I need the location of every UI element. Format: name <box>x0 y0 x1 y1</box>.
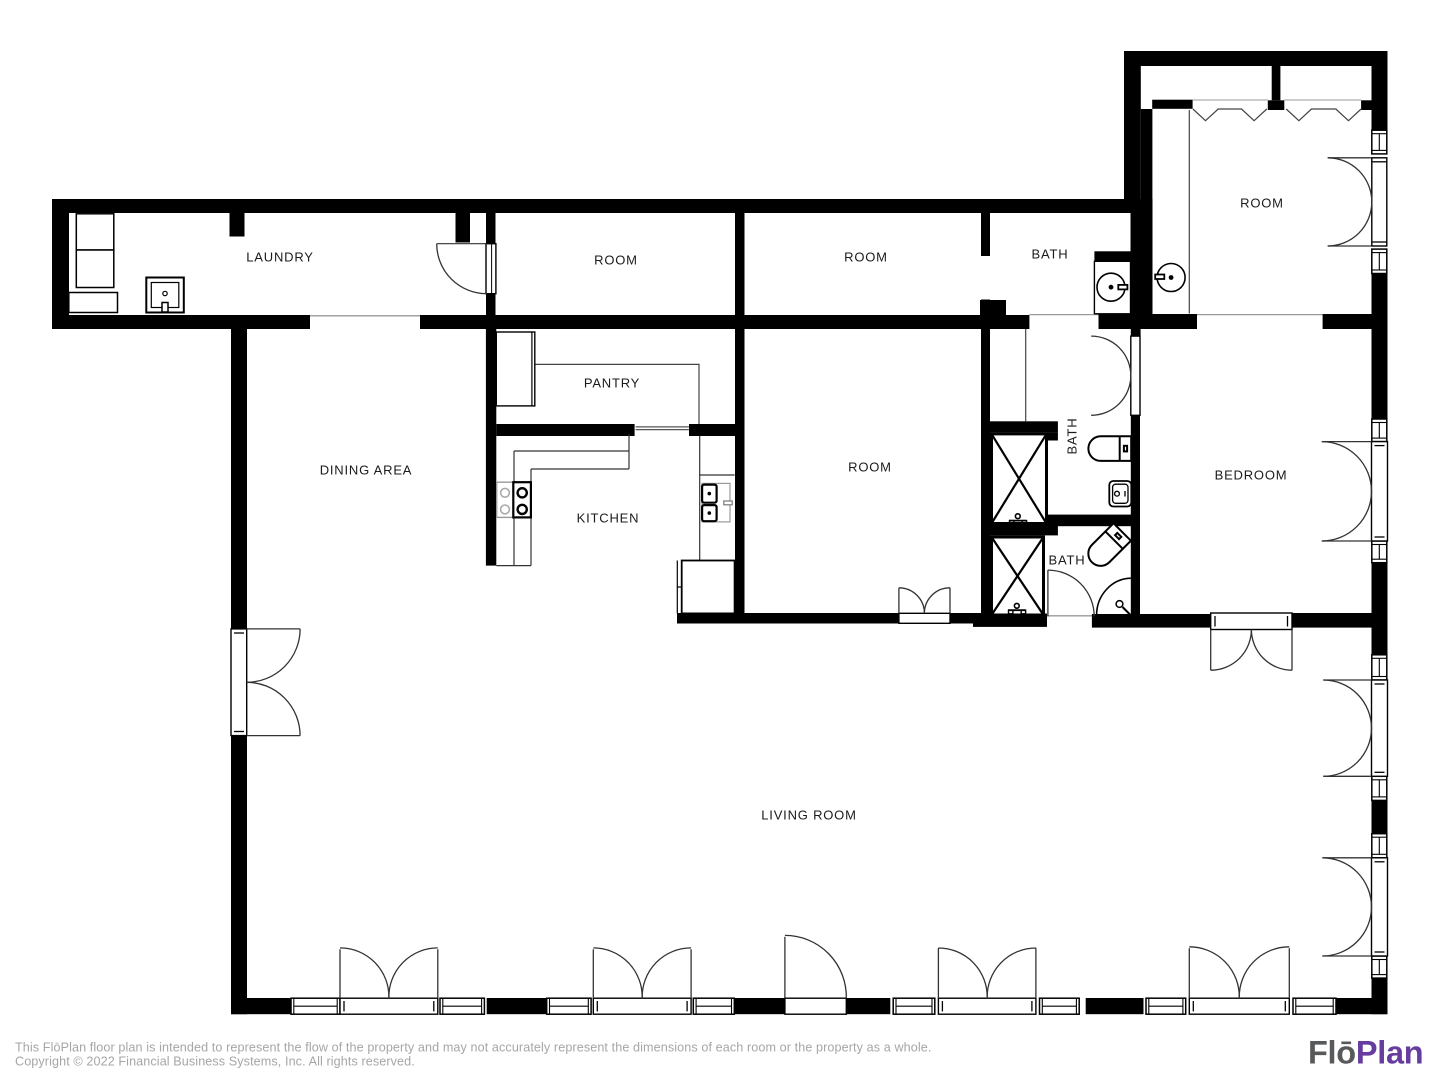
svg-text:ROOM: ROOM <box>844 250 888 265</box>
svg-text:KITCHEN: KITCHEN <box>577 511 640 526</box>
svg-text:BATH: BATH <box>1032 247 1069 262</box>
svg-text:ROOM: ROOM <box>1240 196 1284 211</box>
svg-text:ROOM: ROOM <box>848 460 892 475</box>
svg-text:LAUNDRY: LAUNDRY <box>246 250 314 265</box>
svg-text:FlōPlan: FlōPlan <box>1308 1035 1423 1071</box>
svg-text:DINING AREA: DINING AREA <box>320 463 413 478</box>
svg-text:PANTRY: PANTRY <box>584 376 640 391</box>
svg-text:BEDROOM: BEDROOM <box>1215 468 1288 483</box>
svg-text:BATH: BATH <box>1049 553 1086 568</box>
svg-text:This FlōPlan floor plan is int: This FlōPlan floor plan is intended to r… <box>15 1041 931 1055</box>
svg-text:ROOM: ROOM <box>594 253 638 268</box>
svg-text:LIVING ROOM: LIVING ROOM <box>761 808 856 823</box>
svg-text:Copyright © 2022 Financial Bus: Copyright © 2022 Financial Business Syst… <box>15 1055 415 1069</box>
svg-text:BATH: BATH <box>1065 418 1080 455</box>
